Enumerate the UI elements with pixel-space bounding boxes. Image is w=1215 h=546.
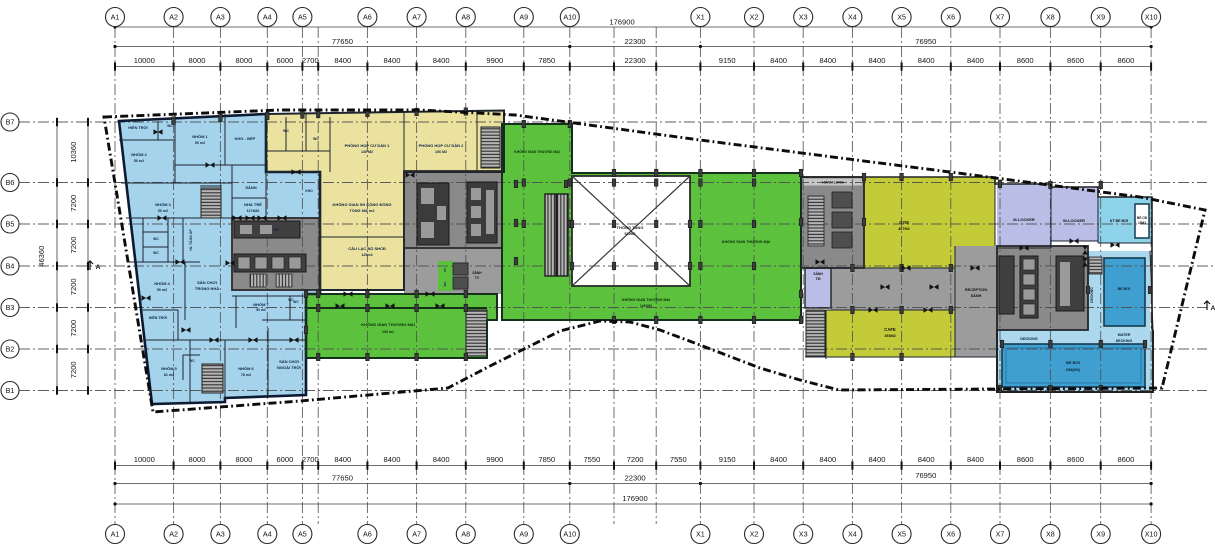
svg-text:B3: B3	[6, 303, 15, 312]
svg-text:8400: 8400	[918, 455, 935, 464]
svg-text:WC: WC	[293, 300, 299, 304]
svg-text:WATER: WATER	[1118, 333, 1131, 337]
svg-text:76950: 76950	[915, 471, 936, 480]
svg-text:X7: X7	[996, 13, 1005, 22]
svg-text:THÔNG TẦNG: THÔNG TẦNG	[617, 225, 644, 230]
svg-text:176900: 176900	[622, 494, 647, 503]
svg-text:RECEPTION: RECEPTION	[965, 288, 987, 292]
svg-text:WC: WC	[153, 251, 159, 255]
svg-text:KHÔNG GIAN THƯƠNG MẠI: KHÔNG GIAN THƯƠNG MẠI	[722, 239, 770, 244]
svg-text:DECKING: DECKING	[1090, 287, 1094, 303]
svg-text:50 m2: 50 m2	[134, 159, 144, 163]
svg-text:KHO - BẾP: KHO - BẾP	[235, 136, 256, 141]
svg-text:7200: 7200	[69, 237, 78, 254]
svg-text:WC: WC	[283, 129, 289, 133]
svg-text:A3: A3	[216, 13, 225, 22]
svg-text:KHÔNG GIAN THƯƠNG MẠI: KHÔNG GIAN THƯƠNG MẠI	[361, 322, 415, 327]
svg-text:A3: A3	[216, 530, 225, 539]
svg-text:A8: A8	[461, 530, 470, 539]
svg-text:50 m2: 50 m2	[157, 288, 167, 292]
svg-text:NHÓM 3: NHÓM 3	[155, 202, 171, 207]
svg-text:8600: 8600	[1117, 56, 1134, 65]
svg-text:1401M2: 1401M2	[640, 304, 652, 308]
svg-text:6000: 6000	[276, 56, 293, 65]
svg-text:DECKING: DECKING	[1116, 339, 1133, 343]
svg-text:7200: 7200	[69, 195, 78, 212]
svg-text:8400: 8400	[967, 56, 984, 65]
svg-text:50 m2: 50 m2	[195, 141, 205, 145]
svg-text:X7: X7	[996, 530, 1005, 539]
svg-text:WC: WC	[189, 359, 195, 363]
svg-text:8000: 8000	[189, 56, 206, 65]
svg-text:8600: 8600	[1067, 56, 1084, 65]
svg-text:SẢNH: SẢNH	[472, 270, 482, 275]
svg-text:233 m2: 233 m2	[382, 330, 394, 334]
svg-text:B7: B7	[6, 118, 15, 127]
svg-text:8400: 8400	[384, 455, 401, 464]
svg-text:A1: A1	[111, 530, 120, 539]
svg-text:A9: A9	[519, 530, 528, 539]
svg-text:7850: 7850	[538, 56, 555, 65]
svg-text:WC: WC	[167, 124, 173, 128]
svg-text:193M2: 193M2	[884, 334, 896, 338]
svg-text:7550: 7550	[670, 455, 687, 464]
svg-text:8400: 8400	[819, 455, 836, 464]
svg-text:HIÊN TRỜI: HIÊN TRỜI	[149, 315, 167, 320]
svg-text:SÂN CHƠI: SÂN CHƠI	[197, 280, 217, 285]
svg-text:9150: 9150	[719, 455, 736, 464]
svg-text:10000: 10000	[134, 455, 155, 464]
svg-text:8400: 8400	[770, 455, 787, 464]
svg-text:KHÔNG GIAN SH CỘNG ĐỒNG: KHÔNG GIAN SH CỘNG ĐỒNG	[333, 202, 392, 207]
svg-text:DECKING: DECKING	[1020, 337, 1038, 341]
svg-text:SÂN CHƠI: SÂN CHƠI	[279, 359, 299, 364]
svg-text:NHÀ TRẺ: NHÀ TRẺ	[244, 202, 262, 207]
svg-text:8400: 8400	[334, 56, 351, 65]
svg-text:TRONG NHÀ: TRONG NHÀ	[195, 286, 219, 291]
svg-text:KHÔNG GIAN THƯƠNG MẠI: KHÔNG GIAN THƯƠNG MẠI	[514, 149, 560, 154]
svg-text:WC: WC	[443, 281, 447, 287]
svg-text:X8: X8	[1046, 530, 1055, 539]
svg-text:X8: X8	[1046, 13, 1055, 22]
svg-text:TỔNG 686 m2: TỔNG 686 m2	[350, 208, 375, 213]
svg-text:X10: X10	[1145, 13, 1158, 22]
svg-text:X9: X9	[1096, 13, 1105, 22]
svg-text:6000: 6000	[276, 455, 293, 464]
svg-text:A4: A4	[263, 13, 272, 22]
svg-text:81 m2: 81 m2	[164, 373, 174, 377]
svg-text:X1: X1	[696, 13, 705, 22]
svg-text:A5: A5	[298, 13, 307, 22]
svg-text:NHÓM 5: NHÓM 5	[161, 366, 177, 371]
svg-text:A9: A9	[519, 13, 528, 22]
svg-text:X10: X10	[1145, 530, 1158, 539]
svg-text:125m2: 125m2	[361, 253, 372, 257]
svg-text:8000: 8000	[189, 455, 206, 464]
svg-text:77650: 77650	[332, 474, 353, 483]
svg-text:X5: X5	[897, 530, 906, 539]
svg-text:KT BỂ BƠI: KT BỂ BƠI	[1110, 218, 1128, 223]
svg-text:76950: 76950	[915, 37, 936, 46]
svg-text:A2: A2	[169, 13, 178, 22]
svg-text:WC: WC	[273, 228, 279, 232]
svg-text:TM: TM	[816, 277, 821, 281]
svg-text:9150: 9150	[719, 56, 736, 65]
svg-text:A6: A6	[363, 530, 372, 539]
svg-text:8400: 8400	[334, 455, 351, 464]
svg-text:10360: 10360	[69, 142, 78, 163]
svg-text:9900: 9900	[486, 455, 503, 464]
svg-text:658(M2): 658(M2)	[1066, 368, 1081, 372]
svg-text:77650: 77650	[332, 37, 353, 46]
svg-text:M-LOCKER: M-LOCKER	[1013, 217, 1035, 222]
svg-text:SẢNH: SẢNH	[813, 271, 823, 276]
svg-text:22300: 22300	[625, 56, 646, 65]
svg-text:8600: 8600	[1067, 455, 1084, 464]
svg-text:510M2: 510M2	[625, 232, 636, 236]
svg-text:8400: 8400	[967, 455, 984, 464]
svg-text:8400: 8400	[770, 56, 787, 65]
svg-text:8400: 8400	[918, 56, 935, 65]
svg-text:50 m2: 50 m2	[158, 209, 168, 213]
svg-text:WC: WC	[153, 237, 159, 241]
svg-text:SẢNH: SẢNH	[245, 185, 256, 190]
svg-text:15M3: 15M3	[1138, 221, 1146, 225]
svg-text:CAFE: CAFE	[884, 327, 896, 332]
svg-text:HÀNH LANG: HÀNH LANG	[822, 180, 844, 185]
svg-text:8000: 8000	[235, 56, 252, 65]
svg-text:NHÓM 7: NHÓM 7	[253, 302, 269, 307]
svg-text:X3: X3	[799, 13, 808, 22]
svg-text:GYM: GYM	[899, 220, 909, 225]
svg-text:8000: 8000	[235, 455, 252, 464]
svg-text:8400: 8400	[433, 56, 450, 65]
svg-text:7200: 7200	[69, 320, 78, 337]
svg-text:8400: 8400	[869, 455, 886, 464]
svg-text:22300: 22300	[625, 474, 646, 483]
svg-text:BỂ CB: BỂ CB	[1137, 215, 1148, 220]
svg-text:50 m2: 50 m2	[256, 308, 266, 312]
svg-text:A5: A5	[298, 530, 307, 539]
svg-text:X4: X4	[848, 13, 857, 22]
svg-text:NHÓM 2: NHÓM 2	[131, 152, 147, 157]
svg-text:B5: B5	[6, 220, 15, 229]
svg-text:DV: DV	[443, 268, 447, 272]
svg-text:A7: A7	[412, 13, 421, 22]
svg-text:8600: 8600	[1117, 455, 1134, 464]
svg-text:PHÒNG HỌP CƯ DÂN 2: PHÒNG HỌP CƯ DÂN 2	[419, 143, 465, 148]
svg-text:CÂU LẠC BỘ SHCĐ: CÂU LẠC BỘ SHCĐ	[348, 246, 386, 251]
svg-text:A: A	[96, 264, 101, 271]
svg-text:A8: A8	[461, 13, 470, 22]
svg-text:HIÊN TRỜI: HIÊN TRỜI	[128, 125, 147, 130]
svg-text:467M2: 467M2	[898, 227, 910, 231]
svg-text:X5: X5	[897, 13, 906, 22]
svg-text:SẢNH: SẢNH	[971, 293, 982, 298]
svg-text:130 M2: 130 M2	[361, 150, 373, 154]
svg-text:8600: 8600	[1017, 455, 1034, 464]
svg-text:7200: 7200	[69, 361, 78, 378]
svg-text:8400: 8400	[819, 56, 836, 65]
svg-text:B1: B1	[6, 386, 15, 395]
svg-text:A1: A1	[111, 13, 120, 22]
svg-text:A: A	[1211, 305, 1215, 312]
svg-text:B4: B4	[6, 262, 15, 271]
svg-text:X3: X3	[799, 530, 808, 539]
svg-text:W-LOCKER: W-LOCKER	[1063, 218, 1085, 223]
svg-text:X6: X6	[946, 13, 955, 22]
svg-text:7200: 7200	[69, 278, 78, 295]
svg-text:9900: 9900	[486, 56, 503, 65]
svg-text:BỂ BƠI: BỂ BƠI	[1118, 286, 1131, 291]
svg-text:A10: A10	[563, 13, 576, 22]
svg-text:78 m2: 78 m2	[241, 373, 251, 377]
svg-text:KHO: KHO	[305, 189, 313, 193]
svg-text:1174M2: 1174M2	[247, 209, 260, 213]
svg-text:HL TẦNG ÁP: HL TẦNG ÁP	[188, 229, 193, 251]
svg-text:X2: X2	[750, 530, 759, 539]
svg-text:7550: 7550	[583, 455, 600, 464]
svg-text:176900: 176900	[609, 18, 634, 27]
svg-text:A10: A10	[563, 530, 576, 539]
svg-text:A6: A6	[363, 13, 372, 22]
svg-text:10000: 10000	[134, 56, 155, 65]
svg-text:BỂ BƠI: BỂ BƠI	[1066, 360, 1080, 365]
svg-text:X1: X1	[696, 530, 705, 539]
svg-text:2700: 2700	[302, 56, 319, 65]
svg-text:A4: A4	[263, 530, 272, 539]
svg-text:X4: X4	[848, 530, 857, 539]
svg-text:NHÓM 4: NHÓM 4	[154, 281, 170, 286]
svg-text:8600: 8600	[1017, 56, 1034, 65]
svg-text:X6: X6	[946, 530, 955, 539]
svg-text:WC: WC	[313, 137, 319, 141]
svg-text:8400: 8400	[384, 56, 401, 65]
svg-text:8400: 8400	[433, 455, 450, 464]
svg-text:NHÓM 6: NHÓM 6	[238, 366, 254, 371]
svg-text:22300: 22300	[625, 37, 646, 46]
svg-text:2700: 2700	[302, 455, 319, 464]
svg-text:KHÔNG GIAN THƯƠNG MẠI: KHÔNG GIAN THƯƠNG MẠI	[622, 297, 670, 302]
svg-text:NHÓM 1: NHÓM 1	[192, 134, 208, 139]
svg-text:PHÒNG HỌP CƯ DÂN 1: PHÒNG HỌP CƯ DÂN 1	[345, 143, 391, 148]
svg-text:7850: 7850	[538, 455, 555, 464]
svg-text:NGOÀI TRỜI: NGOÀI TRỜI	[277, 365, 301, 370]
svg-text:WC: WC	[288, 298, 294, 302]
svg-text:X2: X2	[750, 13, 759, 22]
svg-text:B2: B2	[6, 345, 15, 354]
svg-text:8400: 8400	[869, 56, 886, 65]
svg-text:106 M2: 106 M2	[435, 150, 447, 154]
svg-text:A2: A2	[169, 530, 178, 539]
svg-text:46360: 46360	[37, 246, 46, 267]
svg-text:B6: B6	[6, 178, 15, 187]
svg-text:X9: X9	[1096, 530, 1105, 539]
svg-text:A7: A7	[412, 530, 421, 539]
svg-text:7200: 7200	[627, 455, 644, 464]
